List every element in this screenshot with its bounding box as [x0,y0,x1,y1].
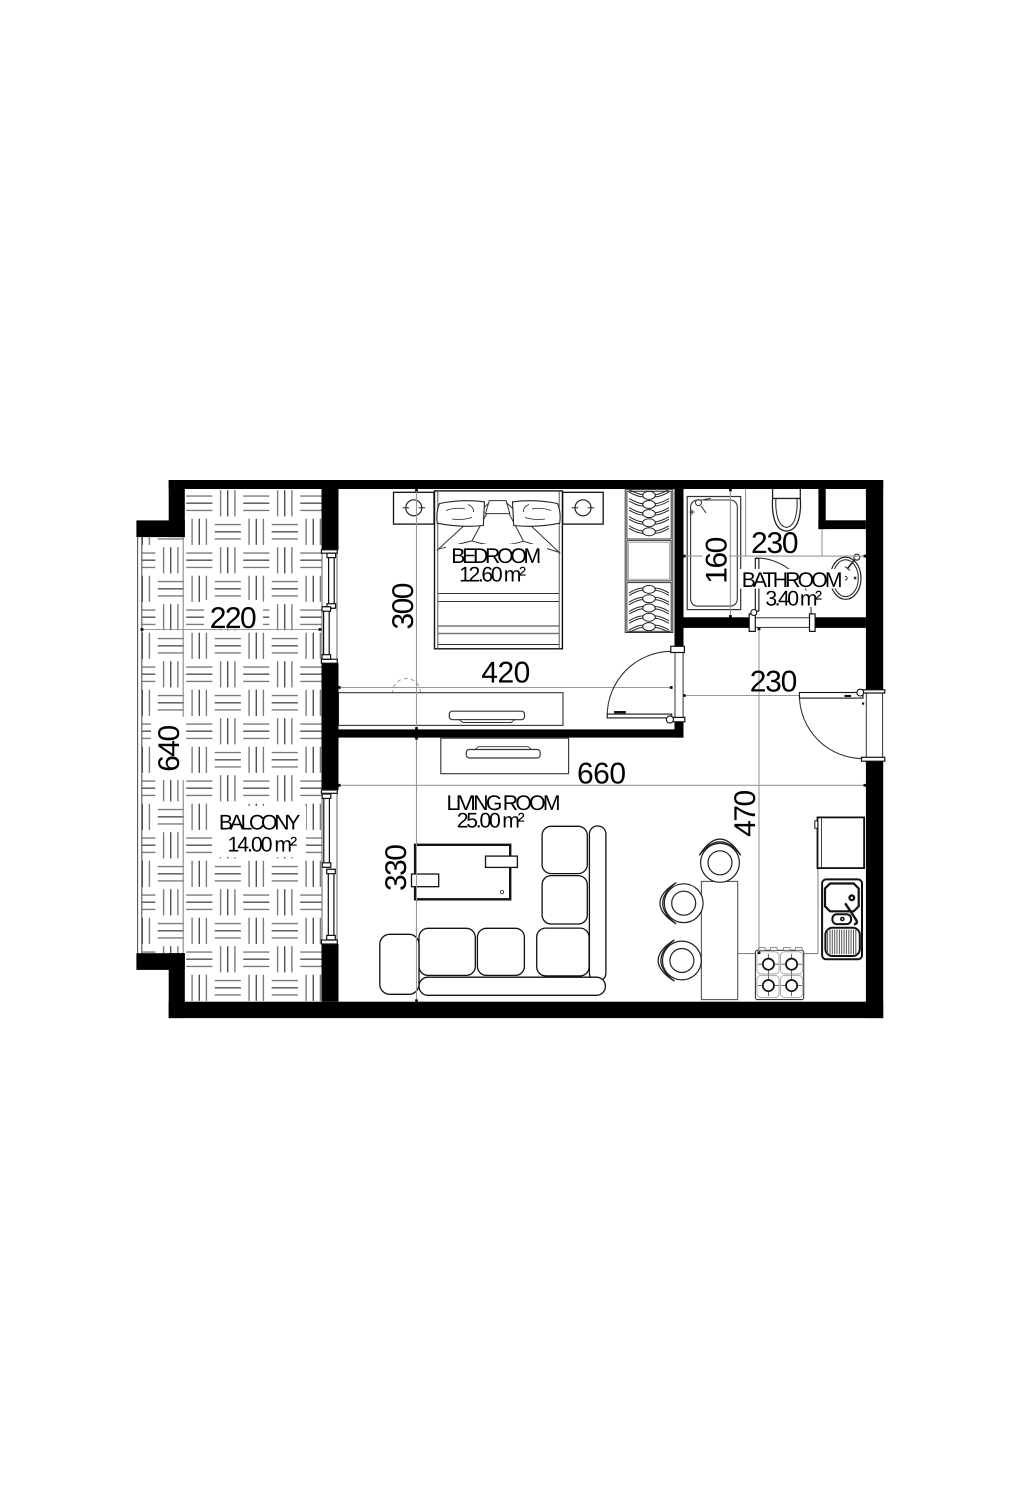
svg-text:220: 220 [210,602,257,635]
svg-text:230: 230 [750,666,798,699]
svg-text:BALCONY: BALCONY [219,812,301,835]
svg-text:300: 300 [387,583,420,630]
svg-text:12.60 m²: 12.60 m² [459,564,526,587]
svg-text:14.00 m²: 14.00 m² [227,834,297,857]
svg-text:470: 470 [729,790,762,837]
svg-text:3.40 m²: 3.40 m² [765,588,822,611]
svg-text:230: 230 [751,527,799,560]
svg-text:660: 660 [577,758,626,791]
svg-text:330: 330 [380,844,413,891]
svg-text:25.00 m²: 25.00 m² [457,810,525,833]
svg-text:160: 160 [701,537,734,584]
svg-text:420: 420 [481,656,530,689]
svg-text:640: 640 [153,725,186,772]
